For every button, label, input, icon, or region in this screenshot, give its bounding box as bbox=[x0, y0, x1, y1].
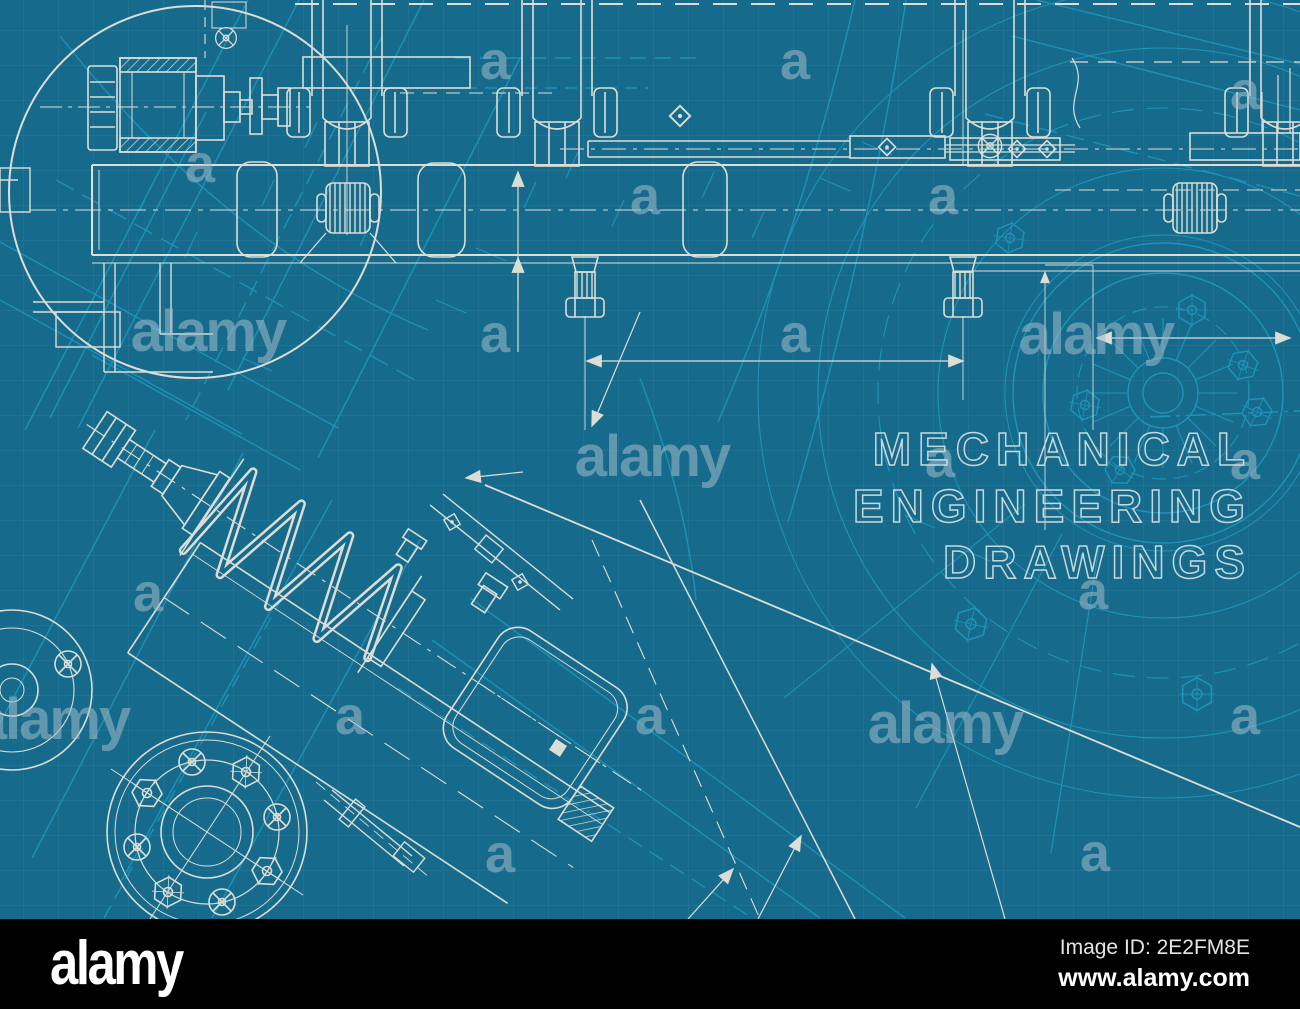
watermark-bar: alamy Image ID: 2E2FM8E www.alamy.com bbox=[0, 919, 1300, 1009]
watermark-letter: a bbox=[780, 31, 811, 91]
watermark-letter: a bbox=[1230, 686, 1261, 746]
watermark-letter: a bbox=[928, 166, 959, 226]
caption-line-3: DRAWINGS bbox=[943, 536, 1252, 588]
watermark-letter: a bbox=[335, 686, 366, 746]
watermark-letter: a bbox=[630, 166, 661, 226]
alamy-logo: alamy bbox=[50, 933, 182, 995]
watermark-word: alamy bbox=[868, 691, 1024, 756]
watermark-letter: a bbox=[185, 134, 216, 194]
watermark-letter: a bbox=[485, 824, 516, 884]
watermark-letter: a bbox=[480, 304, 511, 364]
watermark-letter: a bbox=[133, 563, 164, 623]
watermark-word: alamy bbox=[0, 687, 131, 752]
watermark-word: alamy bbox=[575, 424, 731, 489]
watermark-letter: a bbox=[1080, 823, 1111, 883]
caption-line-1: MECHANICAL bbox=[873, 423, 1252, 475]
stock-image-page: aaaaaaaaaaaaaaaaaalamyalamyalamyalamyala… bbox=[0, 0, 1300, 1009]
watermark-letter: a bbox=[780, 304, 811, 364]
image-id-text: Image ID: 2E2FM8E bbox=[1060, 936, 1250, 960]
image-credit: Image ID: 2E2FM8E www.alamy.com bbox=[1058, 936, 1250, 993]
watermark-letter: a bbox=[635, 686, 666, 746]
watermark-word: alamy bbox=[131, 299, 287, 364]
watermark-letter: a bbox=[480, 31, 511, 91]
watermark-word: alamy bbox=[1019, 302, 1175, 367]
website-url-text: www.alamy.com bbox=[1058, 964, 1250, 993]
blueprint-canvas: aaaaaaaaaaaaaaaaaalamyalamyalamyalamyala… bbox=[0, 0, 1300, 919]
caption-line-2: ENGINEERING bbox=[853, 480, 1252, 532]
watermark-letter: a bbox=[1230, 61, 1261, 121]
